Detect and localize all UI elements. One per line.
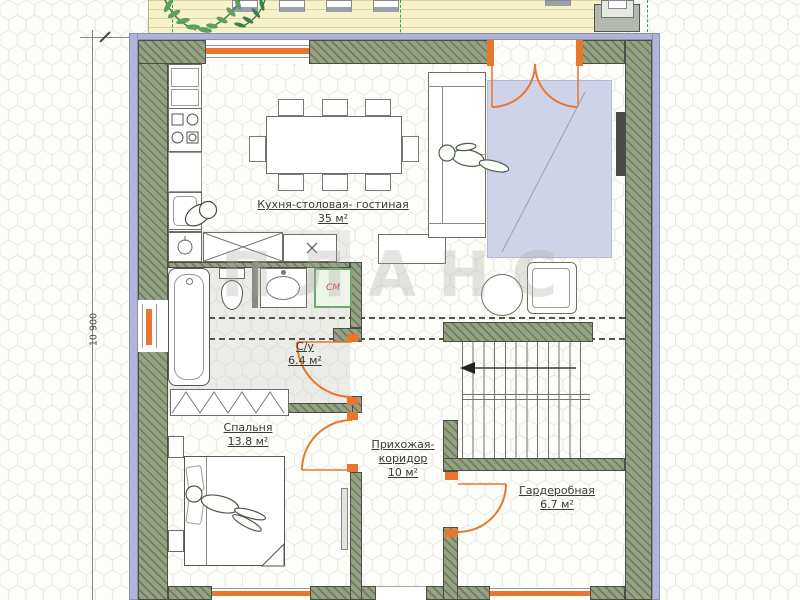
room-area: 13.8 м²	[228, 435, 269, 448]
room-area: 6.7 м²	[540, 498, 574, 511]
bed-fold-corner	[262, 544, 284, 566]
bedroom-door	[302, 420, 352, 470]
person-on-bed	[186, 486, 266, 534]
room-name: С/у	[296, 340, 314, 353]
room-name: коридор	[379, 452, 428, 465]
room-area: 35 м²	[318, 212, 348, 225]
stove-burners	[172, 114, 198, 143]
person-cooking	[181, 200, 216, 231]
crossed-cabinet-x	[204, 233, 282, 261]
room-label-bedroom: Спальня 13.8 м²	[206, 421, 290, 449]
plant-icon	[162, 0, 265, 34]
room-name: Спальня	[224, 421, 273, 434]
room-label-kitchen-living: Кухня-столовая- гостиная 35 м²	[233, 198, 433, 226]
wardrobe-door	[458, 484, 506, 532]
french-door-right	[535, 64, 578, 107]
floor-plan-canvas: 10 900	[0, 0, 800, 600]
cabinet-x-mark	[307, 243, 317, 253]
room-name: Прихожая-	[372, 438, 435, 451]
room-label-bathroom: С/у 6.4 м²	[255, 340, 355, 368]
room-label-wardrobe: Гардеробная 6.7 м²	[502, 484, 612, 512]
wardrobe-rail-zigzag	[172, 392, 284, 413]
room-label-hallway: Прихожая- коридор 10 м²	[363, 438, 443, 480]
room-name: Кухня-столовая- гостиная	[257, 198, 409, 211]
plan-overlay	[0, 0, 800, 600]
person-on-sofa	[439, 142, 510, 174]
room-area: 10 м²	[388, 466, 418, 479]
french-door-left	[492, 64, 535, 107]
carpet-leader-line	[502, 92, 585, 252]
stair-direction-arrow	[460, 362, 576, 374]
room-area: 6.4 м²	[288, 354, 322, 367]
utility-sink-icon	[178, 236, 192, 254]
room-name: Гардеробная	[519, 484, 595, 497]
